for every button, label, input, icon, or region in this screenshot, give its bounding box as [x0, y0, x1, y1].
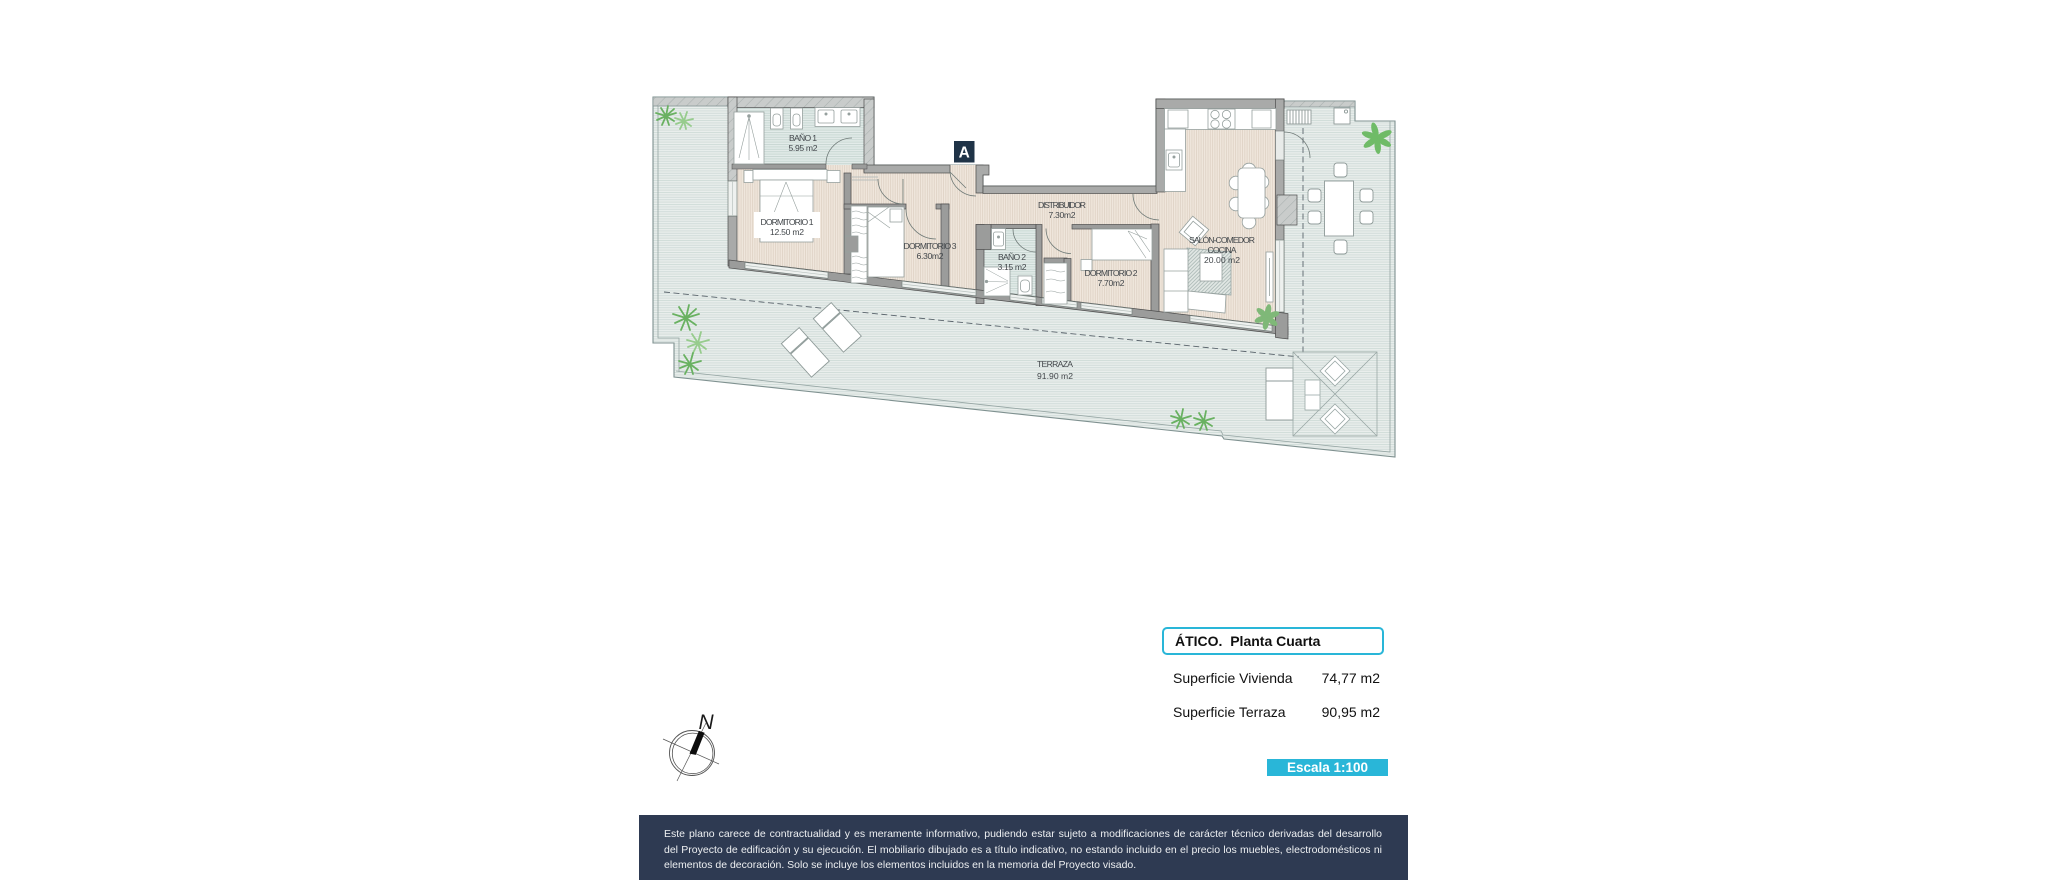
svg-text:5.95 m2: 5.95 m2	[789, 143, 818, 153]
svg-text:6.30m2: 6.30m2	[917, 251, 944, 261]
svg-text:BAÑO 1: BAÑO 1	[789, 133, 817, 143]
svg-text:A: A	[959, 145, 970, 162]
svg-text:7.30m2: 7.30m2	[1049, 210, 1076, 220]
svg-text:20.00 m2: 20.00 m2	[1204, 255, 1240, 265]
svg-text:BAÑO 2: BAÑO 2	[998, 252, 1026, 262]
svg-text:91.90 m2: 91.90 m2	[1037, 371, 1073, 381]
svg-text:N: N	[699, 711, 715, 734]
svg-text:DISTRIBUIDOR: DISTRIBUIDOR	[1038, 200, 1086, 210]
svg-text:SALÓN-COMEDOR: SALÓN-COMEDOR	[1189, 235, 1255, 245]
svg-text:TERRAZA: TERRAZA	[1037, 359, 1073, 369]
svg-text:7.70m2: 7.70m2	[1098, 278, 1125, 288]
svg-text:DORMITORIO 3: DORMITORIO 3	[904, 241, 957, 251]
svg-text:DORMITORIO 1: DORMITORIO 1	[761, 217, 814, 227]
svg-text:12.50 m2: 12.50 m2	[770, 227, 804, 237]
svg-text:COCINA: COCINA	[1208, 245, 1237, 255]
svg-text:DORMITORIO 2: DORMITORIO 2	[1085, 268, 1138, 278]
svg-text:3.15 m2: 3.15 m2	[998, 262, 1027, 272]
